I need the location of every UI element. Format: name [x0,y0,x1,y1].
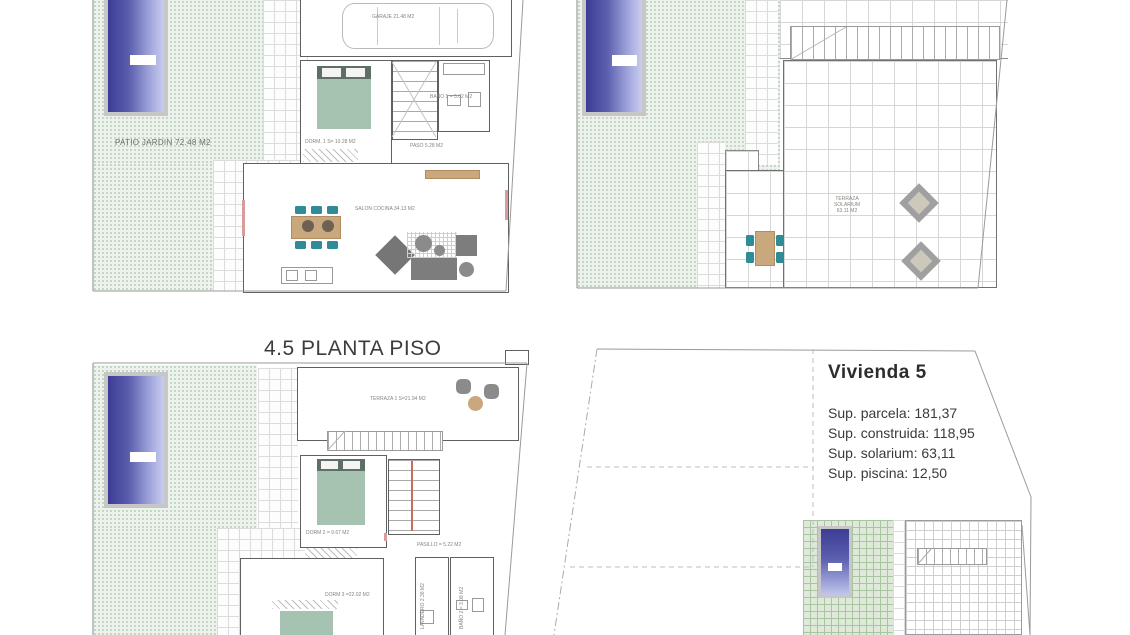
solarium-stairs [790,26,1000,60]
kitchen-hob [305,270,317,281]
table-setting [302,220,314,232]
pool-step [130,55,156,65]
stat-construida: Sup. construida: 118,95 [828,423,975,443]
first-pool [104,372,168,508]
dorm3-bed [280,611,333,635]
car-windshield [439,7,440,45]
dorm2-bed-headboard [317,459,365,471]
dining-chair [295,241,306,249]
pool-step [130,452,156,462]
dorm1-threshold-hatch [303,149,358,162]
solarium-table [755,231,775,266]
mini-pool [818,526,852,598]
solarium-chair [746,235,754,246]
solarium-chair [746,252,754,263]
terrace-chair [456,379,471,394]
garage-label: GARAJE 21.48 M2 [372,14,414,20]
bath2-room [450,557,494,635]
first-patio-lawn-lower [93,528,217,635]
lounge-circle [459,262,474,277]
sun-lounger-cushion [908,192,931,215]
window-accent [242,200,245,236]
lavadero-label: LAVADERO 2.38 M2 [420,583,426,629]
solarium-chair [776,252,784,263]
bath2-toilet [472,598,484,612]
table-setting [322,220,334,232]
terrace-stairs [327,431,443,451]
ground-pool [104,0,168,116]
sun-lounger-cushion [910,250,933,273]
first-tile-path [258,368,298,528]
bath2-label: BAÑO 2 = 3.08 M2 [459,583,465,629]
pillow [321,461,338,469]
solarium-tile-path [745,0,778,165]
sofa [411,258,457,280]
kitchen-sink [286,270,298,281]
bath1-label: BAÑO 1 = 5.02 M2 [430,94,472,100]
roof-detail [505,350,529,365]
pool-step [828,563,842,571]
stat-piscina: Sup. piscina: 12,50 [828,463,975,483]
sideboard [425,170,480,179]
dorm3-threshold-hatch [272,600,338,609]
pillow [322,68,341,77]
first-terrace [297,367,519,441]
first-floor-title: 4.5 PLANTA PISO [264,337,442,361]
sofa-corner [456,235,477,256]
car-rear-window [377,7,378,45]
solarium-terrace [783,60,997,288]
solarium-pool [582,0,646,116]
dorm2-label: DORM 2 = 9.67 M2 [306,530,349,536]
mini-roof [905,520,1022,635]
solarium-tile-path-lower [697,142,725,288]
side-table [434,245,445,256]
dorm3-label: DORM 3 =22.02 M2 [325,592,370,598]
pasillo-label: PASILLO = 5.22 M2 [417,542,461,548]
dorm1-label: DORM. 1 S= 10.28 M2 [305,139,356,145]
site-stats: Sup. parcela: 181,37 Sup. construida: 11… [828,403,975,483]
salon-label: SALON COCINA 34.13 M2 [355,206,415,212]
car [342,3,494,49]
stat-solarium: Sup. solarium: 63,11 [828,443,975,463]
dining-chair [311,206,322,214]
dining-chair [311,241,322,249]
ground-patio-lawn-lower [93,163,215,291]
first-stairs [388,459,440,535]
dorm1-bed-headboard [317,66,371,79]
terrace-chair [484,384,499,399]
patio-label: PATIO JARDIN 72.48 M2 [115,138,211,147]
site-title: Vivienda 5 [828,362,927,384]
dorm1-bed [317,79,371,129]
stat-parcela: Sup. parcela: 181,37 [828,403,975,423]
armchair [415,235,432,252]
terrace-table [468,396,483,411]
dining-chair [295,206,306,214]
dorm2-bed [317,471,365,525]
dining-chair [327,241,338,249]
stair-rail-accent [411,461,413,531]
door-jamb-accent [384,533,387,541]
pillow [346,68,365,77]
solarium-chair [776,235,784,246]
window-accent [505,190,508,220]
solarium-label: TERRAZA SOLARIUM 63.11 M2 [828,196,866,214]
terrace1-label: TERRAZA 1 S=21.94 M2 [370,396,426,402]
car-hood-line [457,9,458,43]
pool-step [612,55,637,66]
bath1-shower [443,63,485,75]
solarium-label-line3: 63.11 M2 [828,208,866,214]
mini-stairs [917,548,987,565]
ground-stairs [392,60,438,140]
pillow [343,461,360,469]
solarium-terrace-left [725,170,787,288]
dining-chair [327,206,338,214]
paso-label: PASO 5.28 M2 [410,143,443,149]
floorplan-sheet: PATIO JARDIN 72.48 M2 GARAJE 21.48 M2 DO… [0,0,1130,635]
